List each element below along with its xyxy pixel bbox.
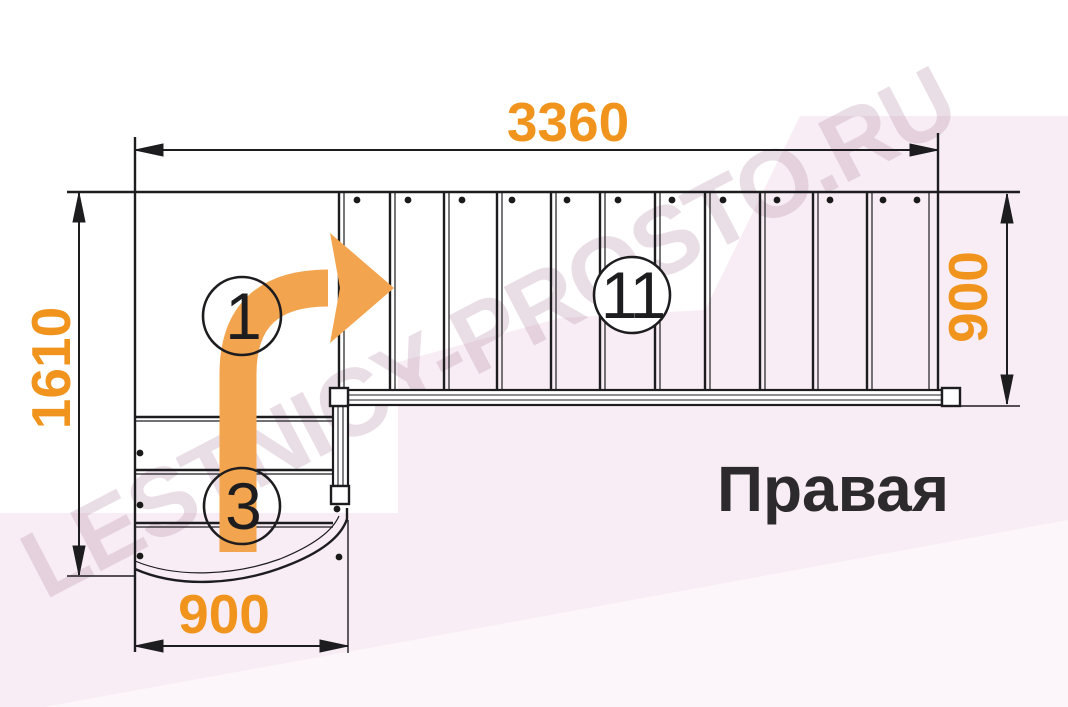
handrail-post-corner (330, 388, 348, 406)
step-label-11: 11 (582, 257, 682, 333)
stair-plan-diagram: LESTNICY-PROSTO.RU (0, 0, 1068, 707)
step-label-3: 3 (192, 468, 292, 544)
dim-arrow-right-icon (910, 144, 938, 156)
handrail-post-bottom (331, 486, 349, 504)
dim-arrow-down-icon (1001, 375, 1013, 404)
step-label-1: 1 (192, 278, 292, 354)
dimension-left-value: 1610 (23, 268, 79, 468)
dimension-top-value: 3360 (468, 94, 668, 150)
dim-arrow-up-icon (73, 193, 85, 222)
dim-arrow-down-icon (73, 546, 85, 575)
dim-arrow-right-icon (320, 640, 348, 652)
baluster-dots-upper (354, 197, 921, 204)
dimension-bottom-value: 900 (124, 586, 324, 642)
dim-arrow-up-icon (1001, 194, 1013, 223)
dim-arrow-left-icon (135, 144, 163, 156)
dimension-right-value: 900 (940, 197, 996, 397)
orientation-caption: Правая (663, 456, 1003, 522)
